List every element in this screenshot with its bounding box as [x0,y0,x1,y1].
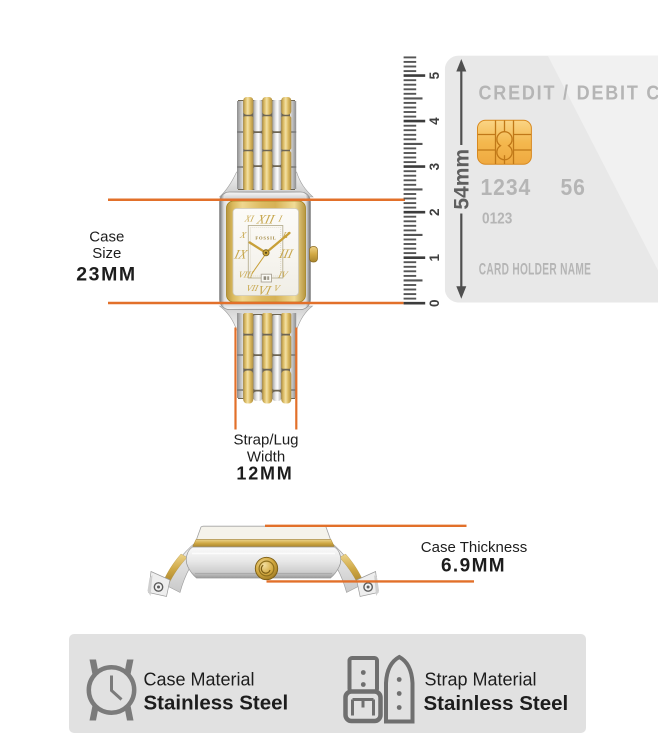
svg-text:56: 56 [561,174,586,200]
svg-text:1: 1 [427,253,442,261]
svg-text:54mm: 54mm [451,149,474,210]
svg-text:Case: Case [89,228,124,245]
svg-text:CREDIT / DEBIT CA: CREDIT / DEBIT CA [479,82,658,104]
svg-text:CARD HOLDER NAME: CARD HOLDER NAME [479,260,592,278]
svg-text:12MM: 12MM [236,464,293,484]
svg-text:FOSSIL: FOSSIL [255,236,276,241]
svg-text:23MM: 23MM [76,264,137,286]
svg-text:2: 2 [427,208,442,216]
svg-text:0123: 0123 [482,211,512,228]
svg-text:Stainless Steel: Stainless Steel [424,692,569,715]
svg-text:Size: Size [92,245,121,262]
svg-text:0: 0 [427,299,442,307]
svg-text:5: 5 [427,71,442,79]
svg-text:Strap/Lug: Strap/Lug [233,431,298,448]
svg-text:Case Thickness: Case Thickness [421,539,527,556]
svg-text:Strap Material: Strap Material [425,670,537,690]
svg-text:1234: 1234 [481,174,532,200]
svg-text:3: 3 [427,162,442,170]
svg-text:Case Material: Case Material [144,670,255,690]
svg-text:6.9MM: 6.9MM [441,556,506,577]
svg-text:4: 4 [427,117,442,125]
svg-text:Stainless Steel: Stainless Steel [144,692,289,715]
